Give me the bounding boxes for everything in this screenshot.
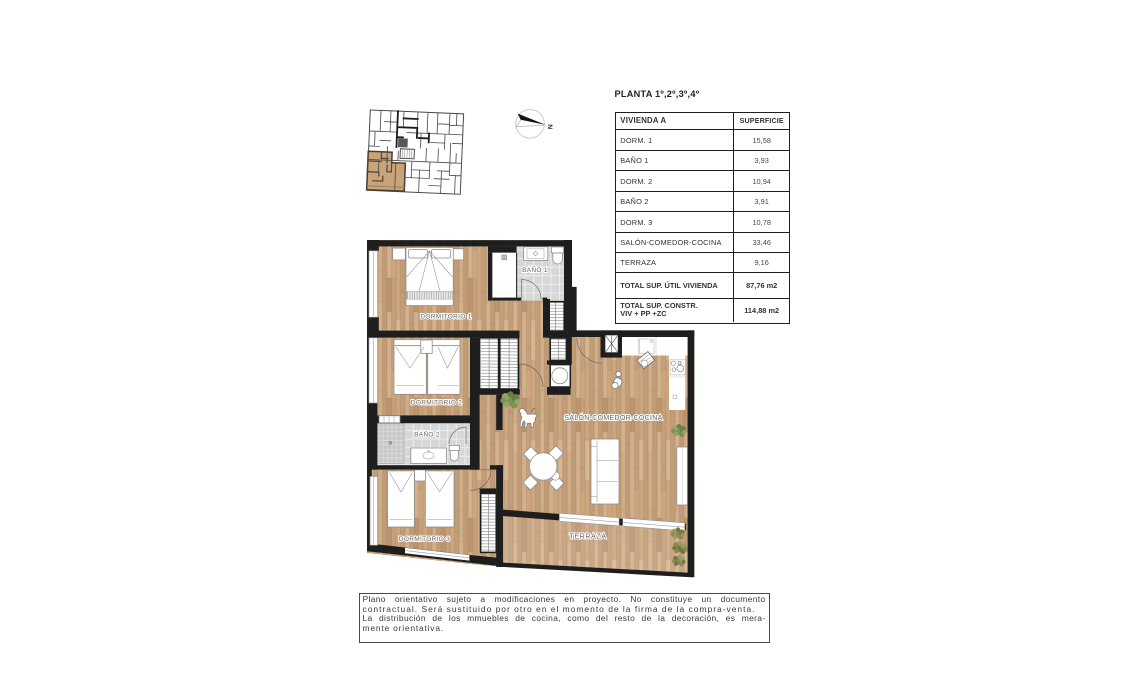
svg-text:TERRAZA: TERRAZA — [569, 531, 606, 540]
svg-text:DORMITORIO 2: DORMITORIO 2 — [411, 400, 462, 407]
svg-text:SALÓN-COMEDOR-COCINA: SALÓN-COMEDOR-COCINA — [564, 413, 662, 422]
svg-text:DORMITORIO 1: DORMITORIO 1 — [420, 313, 471, 320]
svg-text:BAÑO 2: BAÑO 2 — [414, 430, 440, 439]
svg-text:BAÑO 1: BAÑO 1 — [522, 265, 548, 274]
svg-text:DORMITORIO 3: DORMITORIO 3 — [399, 536, 450, 543]
svg-text:N: N — [546, 124, 553, 129]
